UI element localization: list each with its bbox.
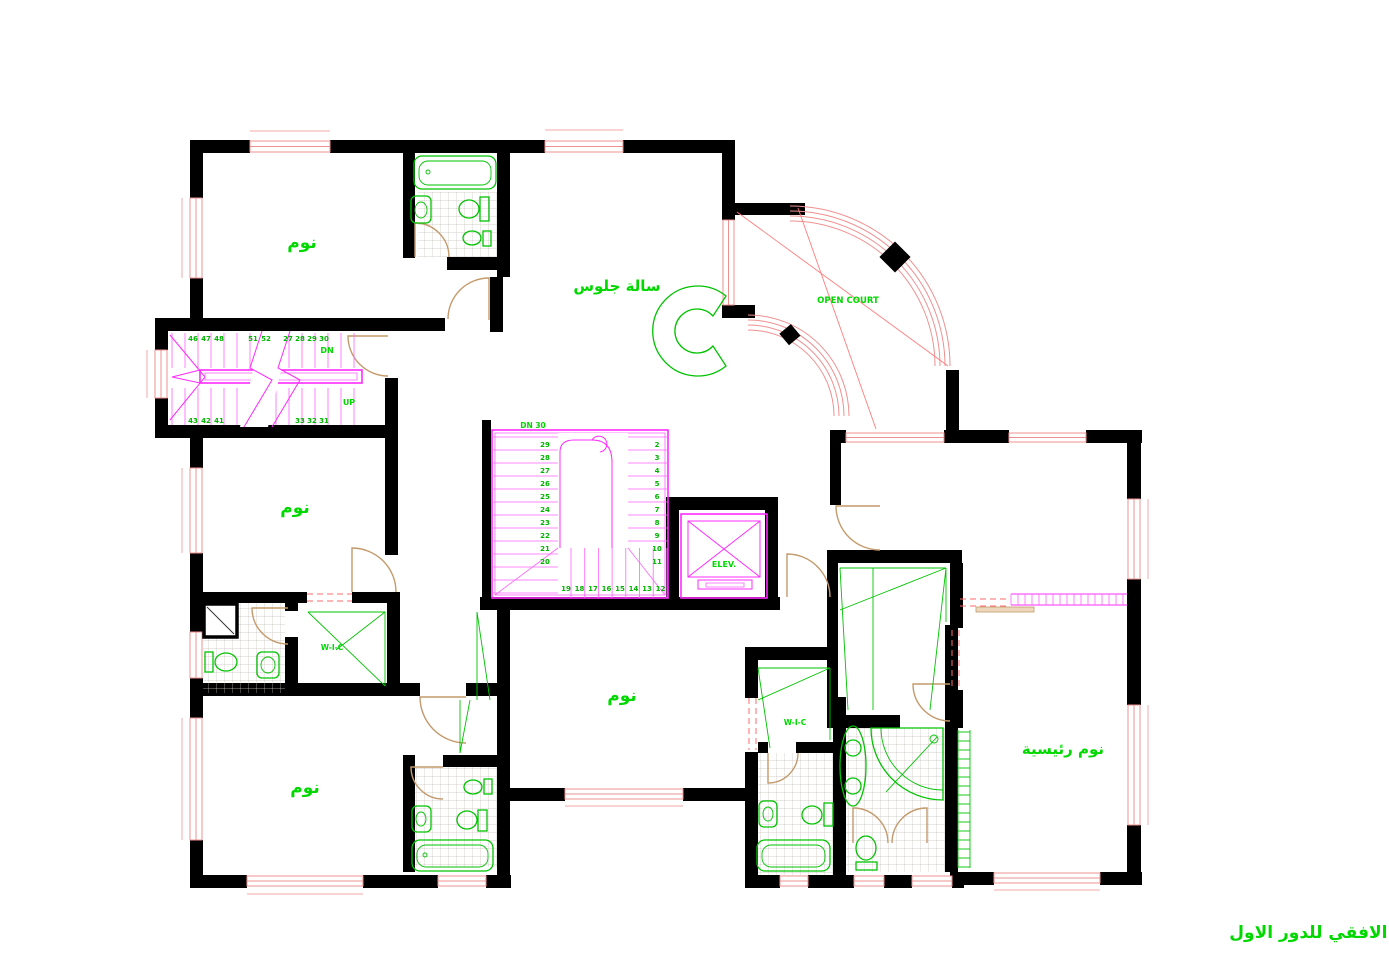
stair-void (558, 433, 628, 548)
svg-text:12: 12 (656, 585, 666, 593)
svg-text:51: 51 (248, 335, 258, 343)
svg-text:29: 29 (307, 335, 317, 343)
room-labels: نوم نوم نوم نوم سالة جلوس نوم رئيسية OPE… (280, 233, 1104, 798)
svg-text:31: 31 (319, 417, 329, 425)
label-open-court: OPEN COURT (817, 296, 879, 306)
wardrobe-wic-master (840, 568, 946, 710)
svg-text:24: 24 (540, 506, 550, 514)
svg-text:47: 47 (201, 335, 211, 343)
floor-plan-page: 464748 5152 27282930 434241 333231 DN UP… (0, 0, 1389, 962)
svg-text:9: 9 (655, 532, 660, 540)
svg-text:16: 16 (602, 585, 612, 593)
svg-text:23: 23 (540, 519, 550, 527)
svg-text:22: 22 (540, 532, 550, 540)
door-bedroom-bottomleft (420, 697, 466, 743)
svg-text:21: 21 (540, 545, 550, 553)
label-bedroom-bottomleft: نوم (290, 778, 320, 798)
svg-text:2: 2 (655, 441, 660, 449)
svg-text:13: 13 (642, 585, 652, 593)
openings (307, 594, 1008, 750)
hall-stair-up-label: UP (343, 398, 355, 407)
svg-text:15: 15 (615, 585, 625, 593)
svg-text:43: 43 (188, 417, 198, 425)
wardrobe-wic-left (308, 612, 385, 686)
svg-text:48: 48 (214, 335, 224, 343)
svg-text:11: 11 (652, 558, 662, 566)
court-arc-post (879, 241, 910, 272)
closet-hall-lines (460, 612, 490, 753)
svg-text:29: 29 (540, 441, 550, 449)
svg-text:42: 42 (201, 417, 211, 425)
label-bedroom-center: نوم (607, 686, 637, 706)
label-wic-center: W-I-C (784, 718, 807, 727)
label-sitting-hall: سالة جلوس (573, 277, 660, 295)
svg-text:20: 20 (540, 558, 550, 566)
door-corridor (787, 554, 830, 597)
svg-text:27: 27 (540, 467, 550, 475)
label-bedroom-midleft: نوم (280, 498, 310, 518)
svg-text:46: 46 (188, 335, 198, 343)
stair-break (240, 331, 290, 427)
floor-plan-canvas: 464748 5152 27282930 434241 333231 DN UP… (0, 0, 1389, 962)
svg-text:32: 32 (307, 417, 317, 425)
elevator-label: ELEV. (712, 560, 736, 569)
svg-text:10: 10 (652, 545, 662, 553)
svg-text:30: 30 (319, 335, 329, 343)
svg-text:14: 14 (629, 585, 639, 593)
bathtub-top (414, 156, 496, 189)
svg-text:41: 41 (214, 417, 224, 425)
label-bedroom-topleft: نوم (287, 233, 317, 253)
svg-text:26: 26 (540, 480, 550, 488)
label-wic-left: W-I-C (321, 643, 344, 652)
open-court (737, 206, 950, 429)
drawing-title: المسقط الافقي للدور الاول (1229, 923, 1389, 943)
svg-text:8: 8 (655, 519, 660, 527)
svg-text:27: 27 (283, 335, 293, 343)
central-stair-dn30: DN 30 (520, 421, 546, 430)
svg-text:33: 33 (295, 417, 305, 425)
elevator: ELEV. (681, 514, 767, 598)
door-rightwing (836, 506, 880, 550)
svg-text:17: 17 (588, 585, 598, 593)
svg-text:52: 52 (261, 335, 271, 343)
shelf (976, 607, 1034, 612)
svg-text:28: 28 (540, 454, 550, 462)
hall-staircase: 464748 5152 27282930 434241 333231 DN UP (170, 331, 362, 427)
hall-stair-dn-label: DN (320, 346, 333, 355)
svg-text:5: 5 (655, 480, 660, 488)
svg-text:3: 3 (655, 454, 660, 462)
door-master-bath (913, 684, 950, 721)
central-staircase: DN 30 29282726252423222120 234567891011 … (492, 421, 668, 598)
svg-text:25: 25 (540, 493, 550, 501)
wardrobe-wic-center (758, 668, 830, 748)
svg-text:6: 6 (655, 493, 660, 501)
shelving-master (958, 730, 970, 868)
svg-text:19: 19 (561, 585, 571, 593)
curved-wall-sitting (653, 286, 726, 376)
railing (976, 594, 1127, 612)
label-master-bedroom: نوم رئيسية (1022, 740, 1104, 758)
svg-text:18: 18 (575, 585, 585, 593)
svg-text:4: 4 (655, 467, 660, 475)
svg-text:28: 28 (295, 335, 305, 343)
shower-left (204, 604, 237, 637)
svg-text:7: 7 (655, 506, 660, 514)
door-bedroom-topleft (448, 278, 489, 320)
